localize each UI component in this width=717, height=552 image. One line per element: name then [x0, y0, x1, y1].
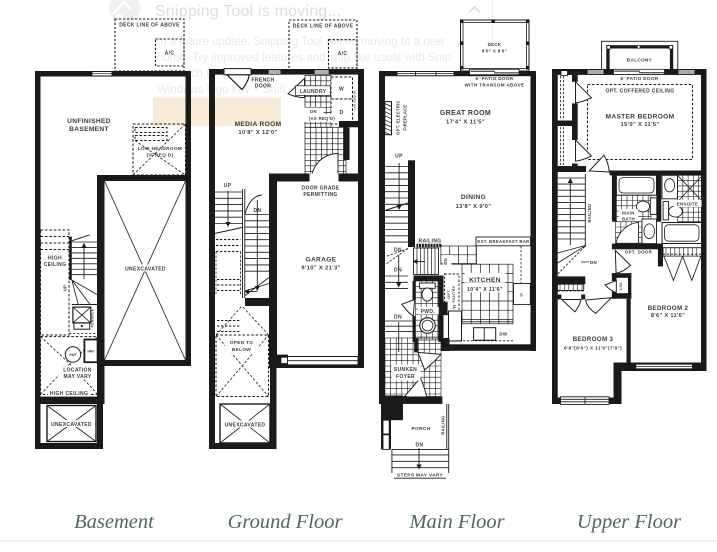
- svg-text:17'4" X 11'5": 17'4" X 11'5": [446, 120, 485, 126]
- svg-text:DECK: DECK: [488, 42, 502, 47]
- svg-text:CEILING: CEILING: [44, 262, 67, 268]
- svg-text:BATH: BATH: [622, 216, 635, 221]
- svg-text:(IF REQ'D): (IF REQ'D): [147, 153, 174, 158]
- svg-text:PERMITTING: PERMITTING: [303, 192, 337, 198]
- svg-text:S: S: [520, 293, 523, 298]
- svg-text:HIGH CEILING: HIGH CEILING: [50, 391, 88, 397]
- svg-text:OPT. DOOR: OPT. DOOR: [625, 250, 653, 255]
- svg-text:MEDIA ROOM: MEDIA ROOM: [235, 121, 282, 128]
- svg-text:DN: DN: [394, 248, 402, 254]
- svg-text:6' PATIO DOOR: 6' PATIO DOOR: [621, 76, 659, 81]
- svg-text:SUNKEN: SUNKEN: [394, 367, 417, 373]
- svg-text:6'8"(8'6") X 11'6"(7'8"): 6'8"(8'6") X 11'6"(7'8"): [564, 345, 622, 351]
- svg-text:8'0" X 6'0": 8'0" X 6'0": [482, 49, 507, 54]
- svg-text:DN: DN: [416, 443, 424, 449]
- svg-text:GARAGE: GARAGE: [305, 257, 336, 264]
- svg-text:BEDROOM 2: BEDROOM 2: [648, 305, 689, 312]
- svg-text:EXT. BREAKFAST BAR: EXT. BREAKFAST BAR: [477, 239, 529, 244]
- svg-text:FURNACE: FURNACE: [91, 308, 95, 327]
- svg-text:BELOW: BELOW: [232, 347, 251, 352]
- svg-text:WITH TRANSOM ABOVE: WITH TRANSOM ABOVE: [465, 83, 525, 88]
- svg-text:Basement: Basement: [74, 511, 155, 533]
- svg-text:DOOR: DOOR: [255, 84, 271, 90]
- svg-text:OPEN TO: OPEN TO: [230, 340, 253, 345]
- svg-text:15'0" X 11'5": 15'0" X 11'5": [621, 122, 660, 128]
- svg-text:FOYER: FOYER: [396, 374, 415, 380]
- svg-text:6' PATIO DOOR: 6' PATIO DOOR: [476, 76, 514, 81]
- svg-text:PWD.: PWD.: [421, 309, 436, 315]
- svg-text:UP: UP: [63, 285, 68, 291]
- svg-text:STEPS MAY VARY: STEPS MAY VARY: [397, 473, 444, 479]
- svg-text:UNEXCAVATED: UNEXCAVATED: [225, 422, 266, 428]
- svg-text:DN: DN: [310, 109, 317, 114]
- svg-text:DECK LINE OF ABOVE: DECK LINE OF ABOVE: [119, 23, 180, 29]
- svg-text:ENSUITE: ENSUITE: [677, 202, 698, 207]
- svg-text:DN: DN: [590, 260, 597, 265]
- svg-text:RAILING: RAILING: [440, 415, 445, 434]
- svg-text:Ground Floor: Ground Floor: [228, 511, 344, 533]
- svg-text:DN: DN: [394, 268, 402, 274]
- svg-text:Try Snip & Sketch: Try Snip & Sketch: [167, 105, 267, 119]
- svg-text:HRV: HRV: [88, 349, 96, 353]
- svg-text:MAIN: MAIN: [622, 211, 634, 216]
- svg-text:home. Try improved features an: home. Try improved features and snip lik…: [157, 52, 451, 64]
- svg-text:FIREPLACE: FIREPLACE: [403, 105, 408, 131]
- svg-text:GREAT ROOM: GREAT ROOM: [440, 110, 491, 117]
- svg-text:DW: DW: [499, 332, 508, 337]
- svg-text:(AS REQ'D): (AS REQ'D): [309, 116, 336, 121]
- svg-text:DECK LINE OF ABOVE: DECK LINE OF ABOVE: [293, 24, 354, 30]
- svg-text:W: W: [339, 87, 344, 93]
- svg-text:DOOR GRADE: DOOR GRADE: [302, 186, 340, 192]
- svg-text:OPT.: OPT.: [447, 289, 451, 299]
- svg-text:HIGH: HIGH: [48, 256, 62, 262]
- svg-text:F: F: [453, 305, 456, 311]
- svg-text:DINING: DINING: [461, 194, 486, 201]
- svg-text:10'4" X 11'6": 10'4" X 11'6": [467, 287, 503, 293]
- svg-text:BALCONY: BALCONY: [627, 58, 652, 63]
- svg-text:KITCHEN: KITCHEN: [469, 277, 501, 284]
- svg-text:MASTER BEDROOM: MASTER BEDROOM: [605, 113, 674, 120]
- svg-text:8'6" X 11'6": 8'6" X 11'6": [651, 313, 685, 319]
- svg-text:RAILING: RAILING: [587, 204, 592, 223]
- svg-text:UNFINISHED: UNFINISHED: [67, 118, 111, 125]
- svg-text:MAY VARY: MAY VARY: [63, 374, 91, 380]
- svg-text:OPT. COFFERED CEILING: OPT. COFFERED CEILING: [605, 88, 674, 94]
- svg-text:LAUNDRY: LAUNDRY: [300, 89, 327, 95]
- svg-text:UP: UP: [395, 154, 403, 160]
- svg-text:LIN.: LIN.: [618, 282, 623, 291]
- svg-text:9'10" X 21'3": 9'10" X 21'3": [301, 266, 340, 272]
- svg-text:Windows logo key + Shift...: Windows logo key + Shift...: [157, 84, 295, 96]
- svg-text:Snipping Tool is moving...: Snipping Tool is moving...: [155, 3, 341, 20]
- svg-text:In a future update, Snipping T: In a future update, Snipping Tool will b…: [157, 36, 445, 48]
- svg-text:PORCH: PORCH: [411, 426, 430, 432]
- svg-text:UNEXCAVATED: UNEXCAVATED: [51, 422, 92, 428]
- svg-text:A/C: A/C: [338, 51, 348, 57]
- svg-text:OPT. ELECTRIC: OPT. ELECTRIC: [396, 100, 401, 135]
- svg-text:DN: DN: [443, 258, 448, 265]
- svg-text:(AS REQ'D): (AS REQ'D): [353, 90, 357, 109]
- svg-text:DN: DN: [394, 314, 402, 320]
- svg-text:Main Floor: Main Floor: [408, 511, 505, 533]
- svg-text:UNEXCAVATED: UNEXCAVATED: [125, 267, 166, 273]
- svg-text:LOW HEADROOM: LOW HEADROOM: [138, 146, 182, 151]
- svg-text:A/C: A/C: [165, 51, 175, 57]
- svg-text:BASEMENT: BASEMENT: [69, 126, 109, 133]
- svg-text:HWT: HWT: [69, 353, 77, 357]
- svg-text:13'8" X 9'0": 13'8" X 9'0": [456, 204, 492, 210]
- svg-text:10'8" X 12'0": 10'8" X 12'0": [238, 130, 277, 136]
- svg-text:Upper Floor: Upper Floor: [577, 511, 682, 533]
- svg-text:UP: UP: [224, 183, 232, 189]
- svg-text:PANTRY: PANTRY: [452, 285, 456, 302]
- svg-text:RAILING: RAILING: [418, 238, 441, 244]
- svg-text:LOCATION: LOCATION: [63, 368, 92, 374]
- svg-text:BEDROOM 3: BEDROOM 3: [573, 336, 614, 343]
